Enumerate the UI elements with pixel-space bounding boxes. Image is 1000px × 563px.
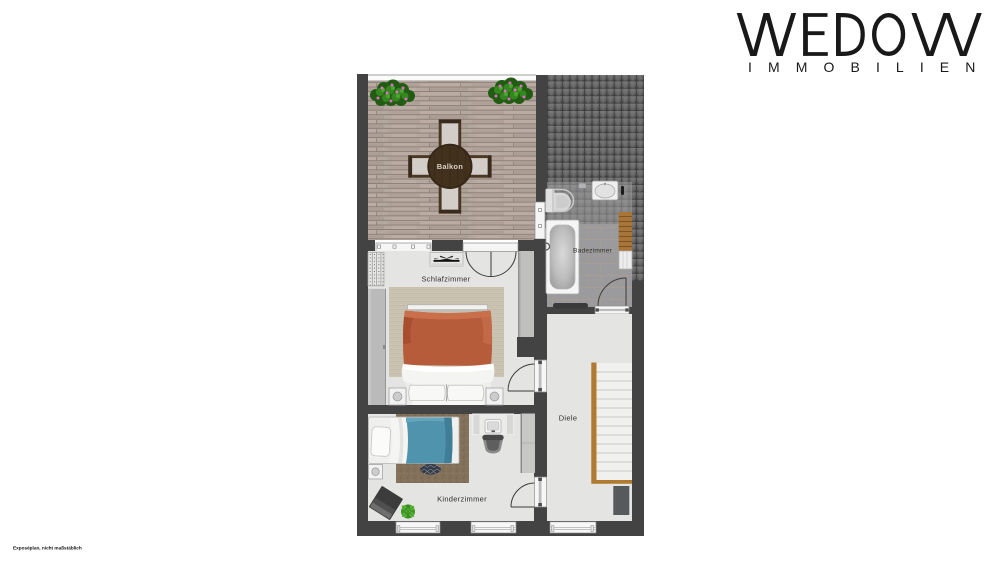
- svg-text:Exposéplan, nicht maßstäblich: Exposéplan, nicht maßstäblich: [13, 545, 82, 550]
- svg-text:Balkon: Balkon: [437, 162, 463, 171]
- svg-text:Badezimmer: Badezimmer: [573, 248, 613, 255]
- svg-text:Kinderzimmer: Kinderzimmer: [437, 495, 487, 504]
- svg-text:Diele: Diele: [559, 414, 578, 423]
- svg-text:IMMOBILIEN: IMMOBILIEN: [748, 59, 991, 75]
- svg-text:Schlafzimmer: Schlafzimmer: [421, 275, 470, 284]
